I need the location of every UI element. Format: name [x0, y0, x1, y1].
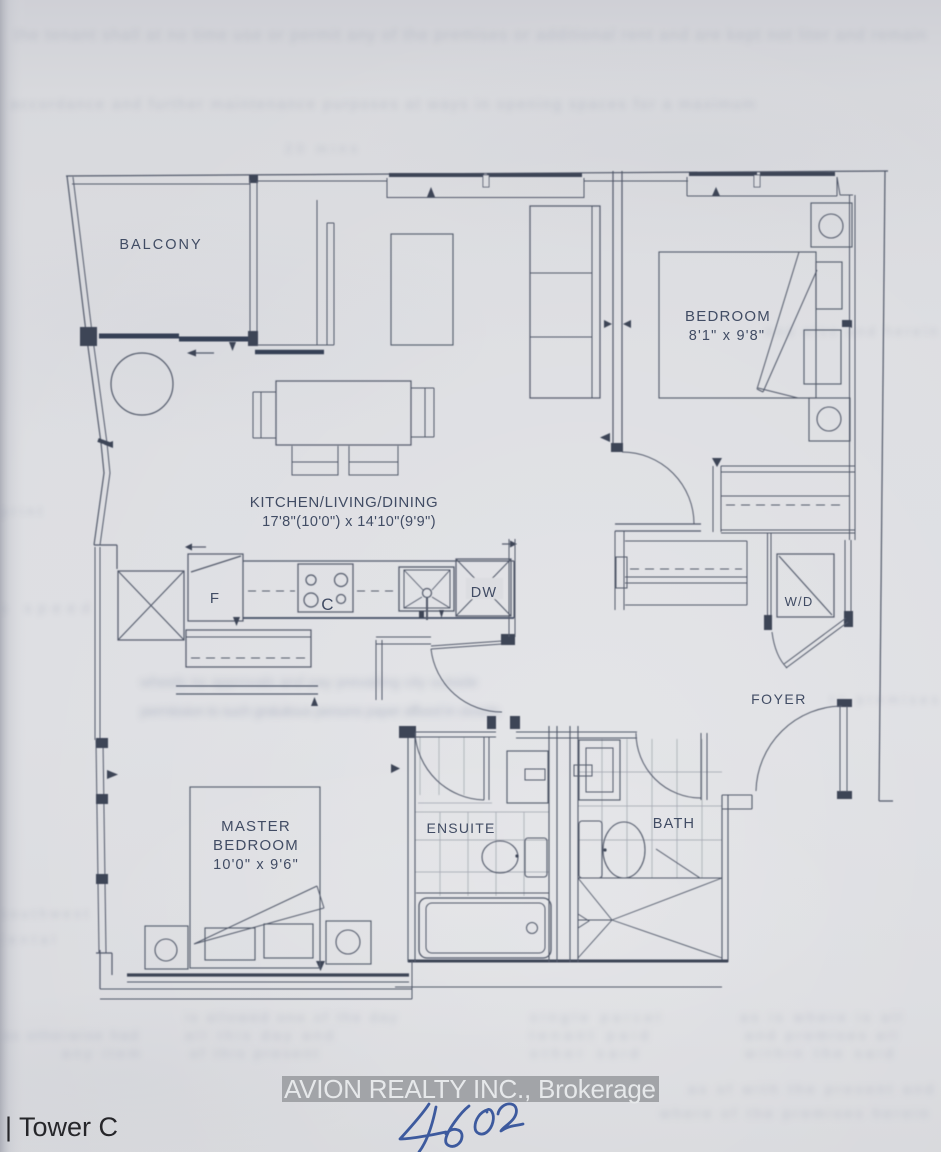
svg-text:C: C: [321, 595, 334, 614]
svg-text:where of the premises herein: where of the premises herein: [659, 1105, 928, 1121]
svg-text:accordance and further mainten: accordance and further maintenance purpo…: [10, 96, 755, 113]
svg-text:BATH: BATH: [653, 816, 695, 832]
svg-text:F: F: [210, 590, 220, 607]
svg-text:single parcel: single parcel: [530, 1009, 660, 1025]
svg-text:W/D: W/D: [785, 594, 814, 609]
svg-text:southwest: southwest: [0, 906, 88, 921]
svg-text:AVION REALTY INC., Brokerage: AVION REALTY INC., Brokerage: [284, 1074, 656, 1104]
svg-text:ENSUITE: ENSUITE: [426, 820, 495, 836]
svg-text:BALCONY: BALCONY: [119, 237, 202, 253]
svg-text:rental: rental: [0, 932, 55, 947]
svg-text:is allowed one of the day: is allowed one of the day: [185, 1009, 397, 1025]
svg-text:17'8"(10'0") x 14'10"(9'9"): 17'8"(10'0") x 14'10"(9'9"): [262, 514, 436, 530]
svg-text:| Tower C: | Tower C: [5, 1112, 118, 1142]
svg-text:wheels no approvals and pay pr: wheels no approvals and pay prevailing c…: [139, 674, 478, 691]
svg-text:DW: DW: [471, 585, 498, 601]
svg-text:the tenant shall at no time us: the tenant shall at no time use or permi…: [14, 27, 926, 44]
svg-text:8'1" x 9'8": 8'1" x 9'8": [689, 328, 766, 344]
svg-text:BEDROOM: BEDROOM: [685, 308, 771, 325]
svg-text:10'0" x 9'6": 10'0" x 9'6": [213, 857, 299, 873]
svg-text:KITCHEN/LIVING/DINING: KITCHEN/LIVING/DINING: [250, 494, 438, 511]
svg-text:BEDROOM: BEDROOM: [213, 837, 299, 854]
svg-text:as otherwise had: as otherwise had: [2, 1027, 138, 1043]
svg-text:permission to such gratuitous: permission to such gratuitous persons pa…: [140, 703, 500, 720]
svg-text:of this present: of this present: [190, 1045, 318, 1061]
svg-text:MASTER: MASTER: [221, 818, 291, 835]
svg-text:FOYER: FOYER: [751, 691, 807, 707]
